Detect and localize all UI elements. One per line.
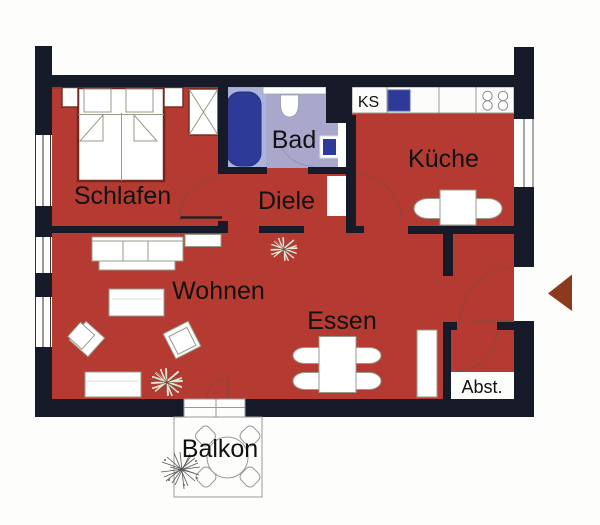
svg-text:Küche: Küche bbox=[408, 145, 479, 173]
svg-text:Wohnen: Wohnen bbox=[172, 277, 265, 305]
svg-text:Diele: Diele bbox=[258, 187, 315, 215]
svg-text:Schlafen: Schlafen bbox=[74, 182, 171, 210]
svg-text:Balkon: Balkon bbox=[182, 435, 258, 463]
svg-text:Abst.: Abst. bbox=[461, 377, 502, 397]
svg-text:Bad: Bad bbox=[272, 126, 316, 154]
svg-text:KS: KS bbox=[358, 94, 379, 111]
svg-text:Essen: Essen bbox=[307, 307, 376, 335]
